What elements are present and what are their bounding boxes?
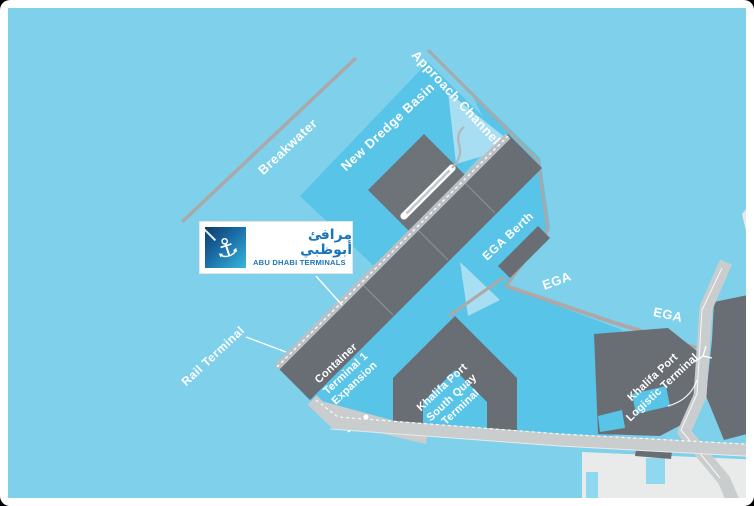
screenshot-frame: Breakwater New Dredge Basin Approach Cha…: [0, 0, 754, 506]
logo-text-block: مرافئ أبوظبي ABU DHABI TERMINALS: [253, 228, 352, 268]
logo-arabic-text: مرافئ أبوظبي: [253, 228, 352, 258]
map-canvas: [8, 8, 746, 498]
land-inlet: [646, 458, 665, 484]
land-inlet-2: [586, 472, 598, 498]
pier-end-node: [401, 213, 408, 220]
port-map: Breakwater New Dredge Basin Approach Cha…: [8, 8, 746, 498]
adt-logo: ⚓ مرافئ أبوظبي ABU DHABI TERMINALS: [199, 221, 353, 274]
logo-english-text: ABU DHABI TERMINALS: [253, 258, 346, 268]
anchor-icon: ⚓: [205, 227, 246, 268]
